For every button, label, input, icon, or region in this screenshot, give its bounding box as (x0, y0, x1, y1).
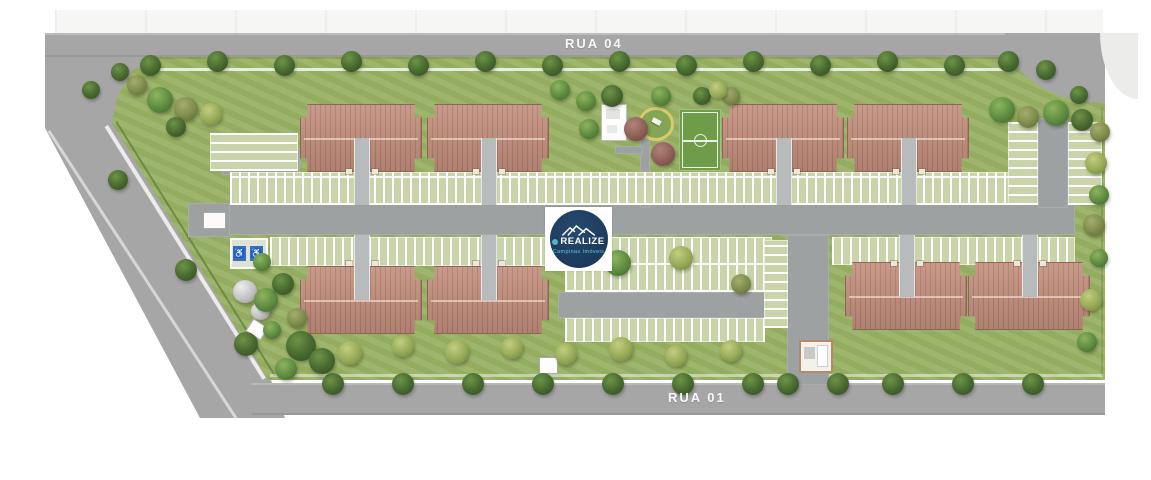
tree (475, 51, 496, 72)
tree (877, 51, 898, 72)
tree (207, 51, 228, 72)
logo-brand-text: REALIZE (560, 237, 604, 247)
tree (408, 55, 429, 76)
tree (1083, 214, 1105, 236)
logo-circle: REALIZE Campinas Imóveis (550, 210, 608, 268)
tree (272, 273, 294, 295)
tree (140, 55, 161, 76)
tree (322, 373, 344, 395)
tree (952, 373, 974, 395)
tree (1090, 249, 1108, 267)
tree (108, 170, 128, 190)
tree (1043, 100, 1069, 126)
tree (82, 81, 100, 99)
tree (501, 337, 523, 359)
tree (742, 373, 764, 395)
building-entry-walkway (901, 138, 917, 205)
tree (720, 340, 742, 362)
tree (127, 75, 147, 95)
tree (445, 340, 469, 364)
neighbor-lots-strip (55, 10, 1103, 34)
tree (989, 97, 1015, 123)
tree (601, 85, 623, 107)
logo-badge: REALIZE Campinas Imóveis (545, 207, 612, 271)
tree (827, 373, 849, 395)
building-entry-walkway (899, 235, 915, 297)
tree (392, 373, 414, 395)
tree (579, 119, 599, 139)
tree (810, 55, 831, 76)
tree (882, 373, 904, 395)
site-plan-canvas: ♿ ♿ RUA 04 RUA 01 REALIZE Campinas Imóve… (0, 0, 1151, 480)
tree (392, 335, 414, 357)
tree (309, 348, 335, 374)
accessible-parking-spot: ♿ (233, 246, 246, 261)
wheelchair-icon: ♿ (234, 248, 245, 258)
tree (602, 373, 624, 395)
tree (542, 55, 563, 76)
internal-road (1038, 118, 1068, 208)
tree (555, 343, 577, 365)
guardhouse (799, 340, 833, 373)
tree (263, 321, 281, 339)
logo-dot-icon (552, 239, 558, 245)
tree (944, 55, 965, 76)
tree (676, 55, 697, 76)
tree (532, 373, 554, 395)
tree (777, 373, 799, 395)
building-entry-walkway (1022, 235, 1038, 297)
tree (609, 51, 630, 72)
tree (341, 51, 362, 72)
street-label-rua-01: RUA 01 (668, 390, 726, 405)
building-entry-walkway (481, 138, 497, 205)
building-entry-walkway (354, 138, 370, 205)
tree (731, 274, 751, 294)
logo-subtitle: Campinas Imóveis (553, 249, 605, 255)
corner-sidewalk (1100, 33, 1138, 99)
tree (665, 345, 687, 367)
tree (1089, 185, 1109, 205)
tree (624, 117, 648, 141)
tree (234, 332, 258, 356)
tree (1070, 86, 1088, 104)
tree (669, 246, 693, 270)
parking-row (764, 240, 788, 328)
parking-row (832, 237, 1075, 265)
parking-row (565, 318, 765, 342)
tree (166, 117, 186, 137)
tree (147, 87, 173, 113)
tree (743, 51, 764, 72)
tree (287, 308, 307, 328)
tree (253, 253, 271, 271)
internal-road (615, 146, 643, 154)
tree (550, 80, 570, 100)
parking-row (1008, 122, 1038, 205)
slide-icon (651, 117, 661, 126)
tree (651, 142, 675, 166)
tree (576, 91, 596, 111)
internal-road (558, 292, 790, 318)
tree (1077, 332, 1097, 352)
tree (175, 259, 197, 281)
tree (709, 81, 727, 99)
tree (998, 51, 1019, 72)
tree (1036, 60, 1056, 80)
sports-court (679, 109, 721, 171)
tree (1080, 289, 1102, 311)
tree (338, 341, 362, 365)
utility-shed (203, 212, 226, 229)
logo-brand-row: REALIZE (552, 237, 604, 247)
small-structure (539, 357, 558, 374)
parking-row (210, 133, 298, 171)
tree (609, 337, 633, 361)
tree (200, 103, 222, 125)
tree (111, 63, 129, 81)
gazebo (601, 104, 627, 141)
tree (275, 358, 297, 380)
tree (651, 86, 671, 106)
tree (1090, 122, 1110, 142)
building-entry-walkway (776, 138, 792, 205)
tree (274, 55, 295, 76)
tree (1017, 106, 1039, 128)
mountains-icon (561, 224, 597, 237)
street-label-rua-04: RUA 04 (565, 36, 623, 51)
building-entry-walkway (481, 235, 497, 300)
court-center-circle (694, 134, 707, 147)
tree (462, 373, 484, 395)
tree (1022, 373, 1044, 395)
tree (1085, 152, 1107, 174)
building-entry-walkway (354, 235, 370, 300)
parking-row (270, 237, 560, 266)
